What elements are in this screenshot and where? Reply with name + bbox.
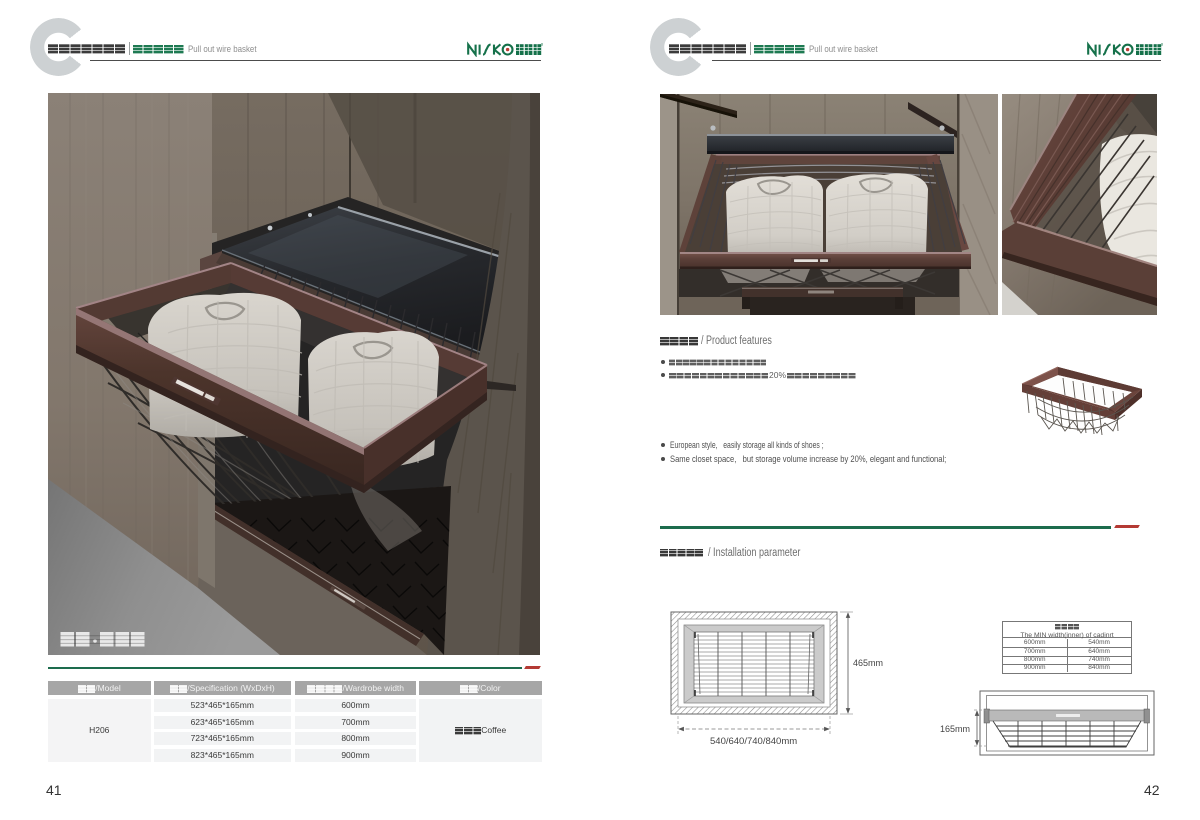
svg-text:165mm: 165mm [940, 724, 970, 734]
svg-text:465mm: 465mm [853, 658, 883, 668]
svg-text:540/640/740/840mm: 540/640/740/840mm [710, 736, 797, 747]
